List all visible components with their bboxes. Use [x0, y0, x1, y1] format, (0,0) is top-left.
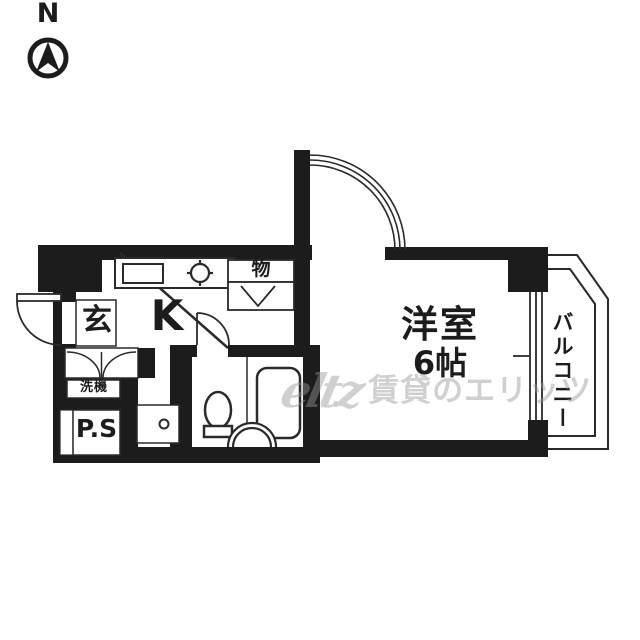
kitchen-counter: [115, 258, 235, 288]
toilet: [204, 392, 232, 437]
washer-label: 洗機: [68, 381, 120, 395]
washing-machine-pan: [137, 405, 179, 443]
main-room-label: 洋室: [378, 306, 502, 345]
main-room-size: 6帖: [386, 347, 494, 381]
compass-icon: [30, 40, 66, 76]
balcony-label: バルコニー: [551, 283, 573, 458]
kitchen-label: K: [138, 294, 196, 338]
pipe-space-label: P.S: [73, 416, 120, 442]
storage-label: 物: [229, 260, 293, 280]
compass-north-label: N: [30, 0, 66, 28]
room-door-arc: [310, 155, 405, 250]
entrance-label: 玄: [77, 305, 117, 337]
bathroom-door: [197, 313, 229, 345]
balcony-window: [513, 292, 542, 420]
floorplan-page: N 玄 K 物 洗機 P.S 洋室 6帖 バルコニー eltz 賃貸のエリッツ: [0, 0, 640, 640]
